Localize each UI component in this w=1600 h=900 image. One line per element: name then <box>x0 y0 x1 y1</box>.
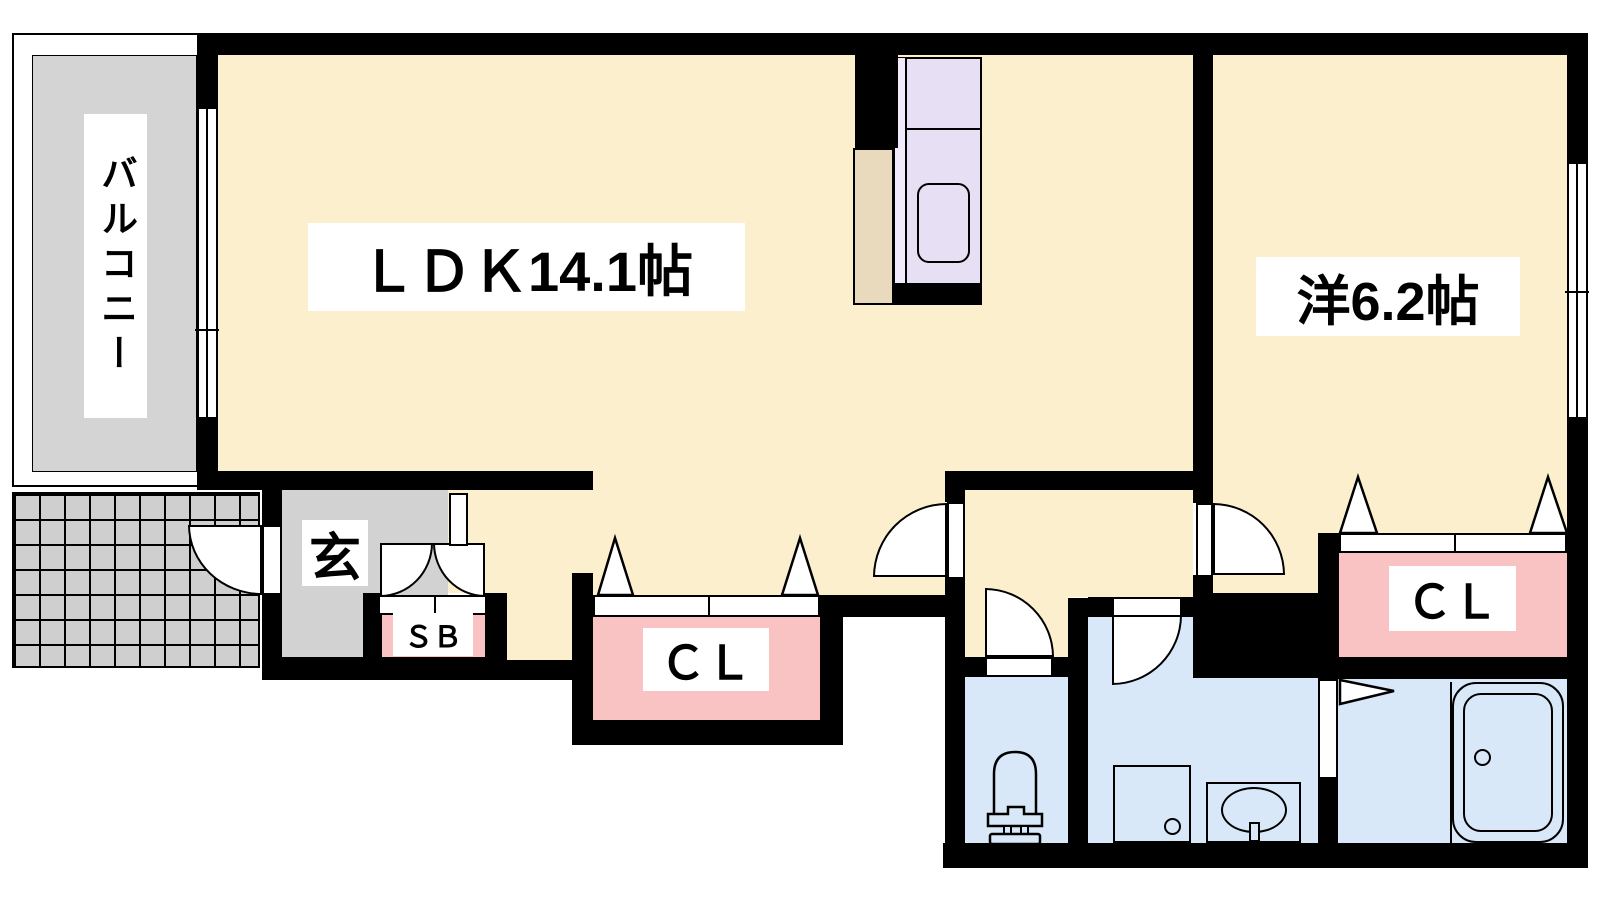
closet-hall-door-leaf-icon <box>596 536 635 597</box>
washing-machine-drain-icon <box>1164 818 1181 835</box>
ldk-hall-door-panel <box>947 502 965 579</box>
closet-hall-label: ＣＬ <box>643 628 769 691</box>
wall-right-lower <box>1567 418 1588 868</box>
wall-top <box>197 33 1588 55</box>
ldk-label: ＬＤＫ14.1帖 <box>308 223 745 311</box>
bedroom-window <box>1567 163 1588 418</box>
toilet-icon <box>984 748 1046 845</box>
wall-entrance-left-upper <box>262 490 282 525</box>
door-strip-divider <box>434 597 436 613</box>
hallway-floor <box>947 490 1193 597</box>
entrance-hall-floor-lower <box>507 593 572 660</box>
wall-toilet-left <box>945 577 965 843</box>
door-strip-divider <box>708 597 710 615</box>
door-strip-divider <box>1454 535 1456 551</box>
wall-kitchen-stub <box>855 55 898 148</box>
entrance-label: 玄 <box>302 520 368 586</box>
window-mullion <box>206 109 208 417</box>
wall-kitchen-bottom <box>894 283 982 305</box>
closet-bedroom-door-strip <box>1339 533 1567 553</box>
wall-washroom-top-left <box>1088 597 1112 617</box>
closet-bedroom-door-leaf-icon <box>1528 475 1569 535</box>
western-room-label: 洋6.2帖 <box>1256 257 1520 336</box>
wall-bottom-right <box>943 843 1588 868</box>
bathroom-door-leaf-icon <box>1338 678 1398 706</box>
entrance-door-panel <box>262 525 282 595</box>
western-door-panel <box>1196 503 1213 577</box>
wall-washroom-top-right <box>1182 597 1193 617</box>
washroom-door-panel <box>1112 597 1182 617</box>
entrance-partition-marker <box>449 493 468 546</box>
wall-left-bottom <box>197 418 218 471</box>
wall-bathroom-left-lower <box>1318 779 1338 843</box>
window-tick <box>1565 291 1589 293</box>
balcony-label: バルコニー <box>84 114 147 418</box>
balcony-window <box>197 108 218 418</box>
closet-bedroom-label: ＣＬ <box>1389 566 1516 631</box>
wall-hall-top <box>945 471 1193 490</box>
closet-hall-door-strip <box>593 595 820 617</box>
shoebox-door-strip <box>378 595 487 615</box>
wall-toilet-right <box>1068 598 1088 843</box>
window-tick <box>195 329 219 331</box>
wall-toilet-top-left <box>965 657 985 677</box>
wall-closet-bedroom-left <box>1318 533 1339 657</box>
shoe-box-label: ＳＢ <box>393 613 473 656</box>
wall-left-top <box>197 55 218 108</box>
floor-plan: バルコニー ＬＤＫ14.1帖 洋6.2帖 玄 ＳＢ ＣＬ ＣＬ <box>0 0 1600 900</box>
wall-closet-hall-right <box>820 595 843 745</box>
bathtub-drain-icon <box>1474 749 1491 766</box>
kitchen-counter-divider <box>907 128 980 130</box>
wall-right-upper <box>1567 55 1588 163</box>
wall-ldk-bottom <box>197 471 593 490</box>
wall-western-left-lower <box>1193 575 1213 593</box>
closet-hall-door-leaf-icon <box>780 536 820 597</box>
kitchen-sink <box>917 183 970 263</box>
toilet-door-panel <box>985 657 1053 677</box>
refrigerator-space <box>853 148 894 305</box>
wall-western-left-upper <box>1193 55 1213 503</box>
wall-closet-bedroom-bottom <box>1318 657 1588 679</box>
wall-doorA-top <box>945 490 965 502</box>
wall-entrance-bottom <box>262 657 507 680</box>
wall-closet-hall-bottom <box>572 720 843 745</box>
bathroom-door-panel <box>1318 679 1338 779</box>
closet-bedroom-door-leaf-icon <box>1338 475 1379 535</box>
wall-toilet-top-right <box>1053 657 1068 677</box>
vanity-faucet-icon <box>1249 822 1260 842</box>
